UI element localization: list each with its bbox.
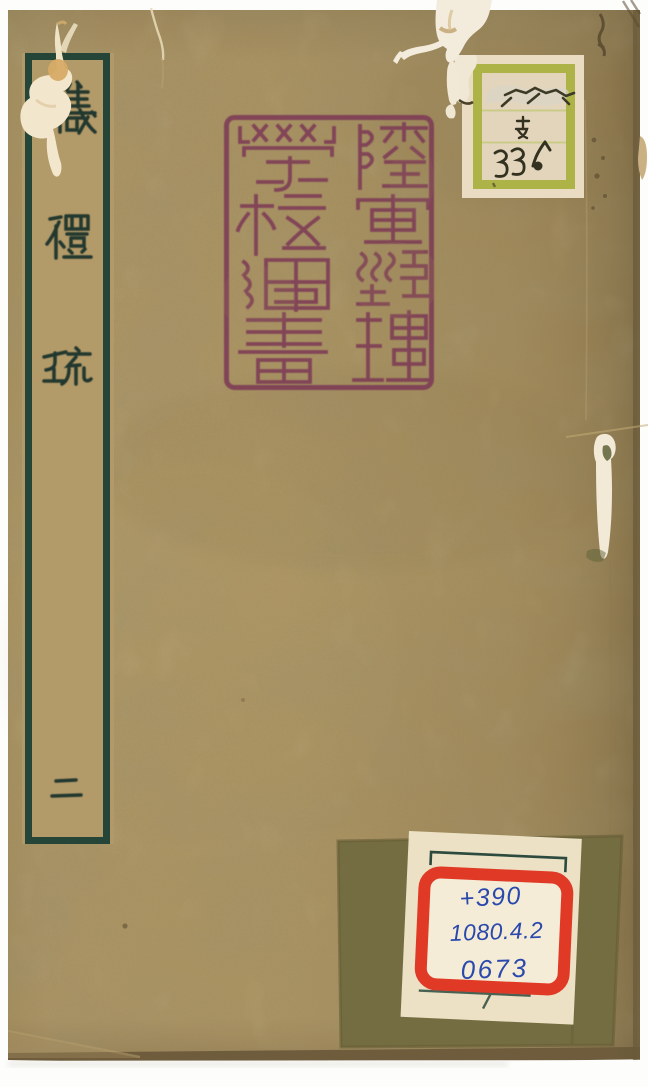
svg-text:0673: 0673: [460, 953, 529, 985]
svg-text:1080.4.2: 1080.4.2: [449, 917, 543, 946]
svg-text:+390: +390: [459, 882, 523, 913]
